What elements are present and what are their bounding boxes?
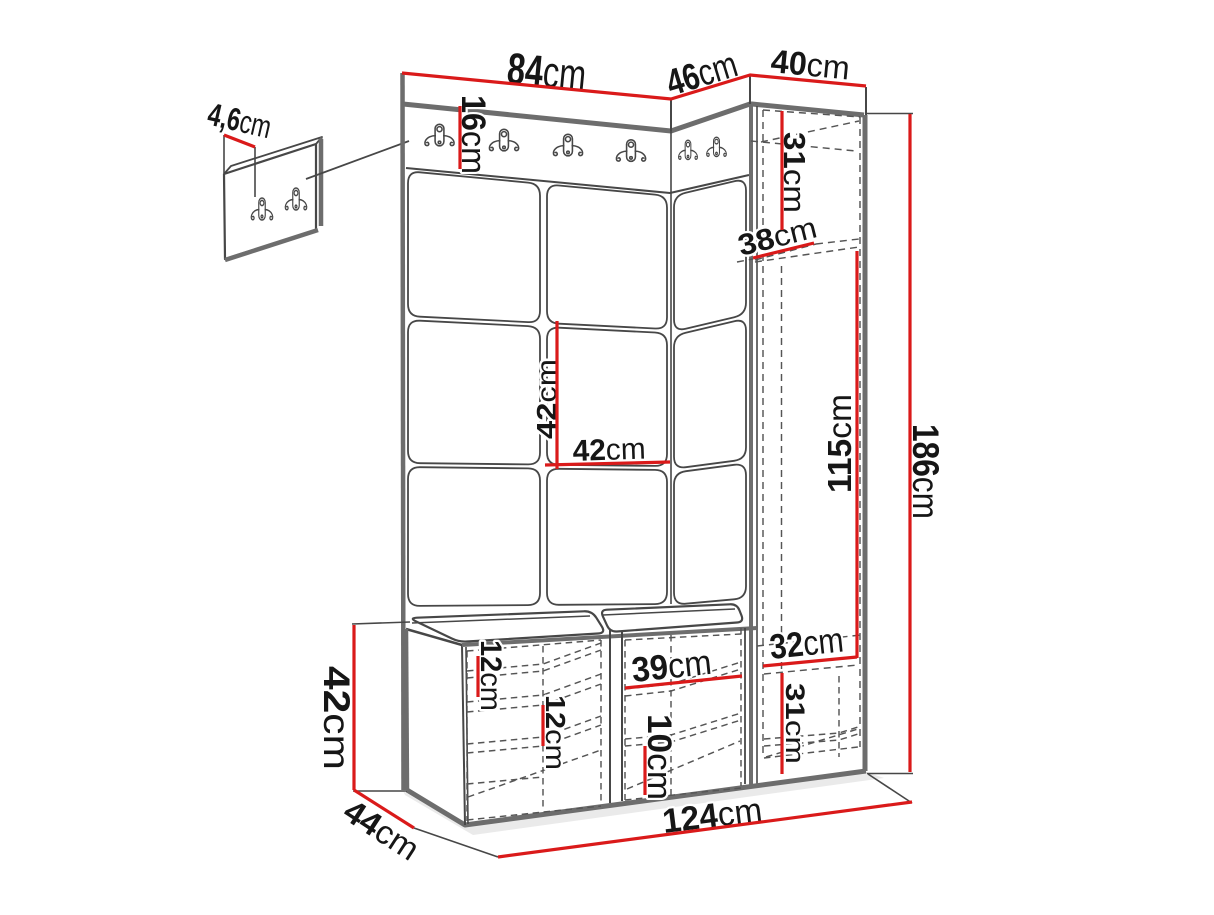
- svg-text:84cm: 84cm: [505, 44, 588, 100]
- svg-text:115cm: 115cm: [821, 394, 858, 493]
- svg-text:12cm: 12cm: [540, 695, 571, 770]
- svg-text:31cm: 31cm: [780, 683, 810, 764]
- svg-text:42cm: 42cm: [316, 666, 357, 770]
